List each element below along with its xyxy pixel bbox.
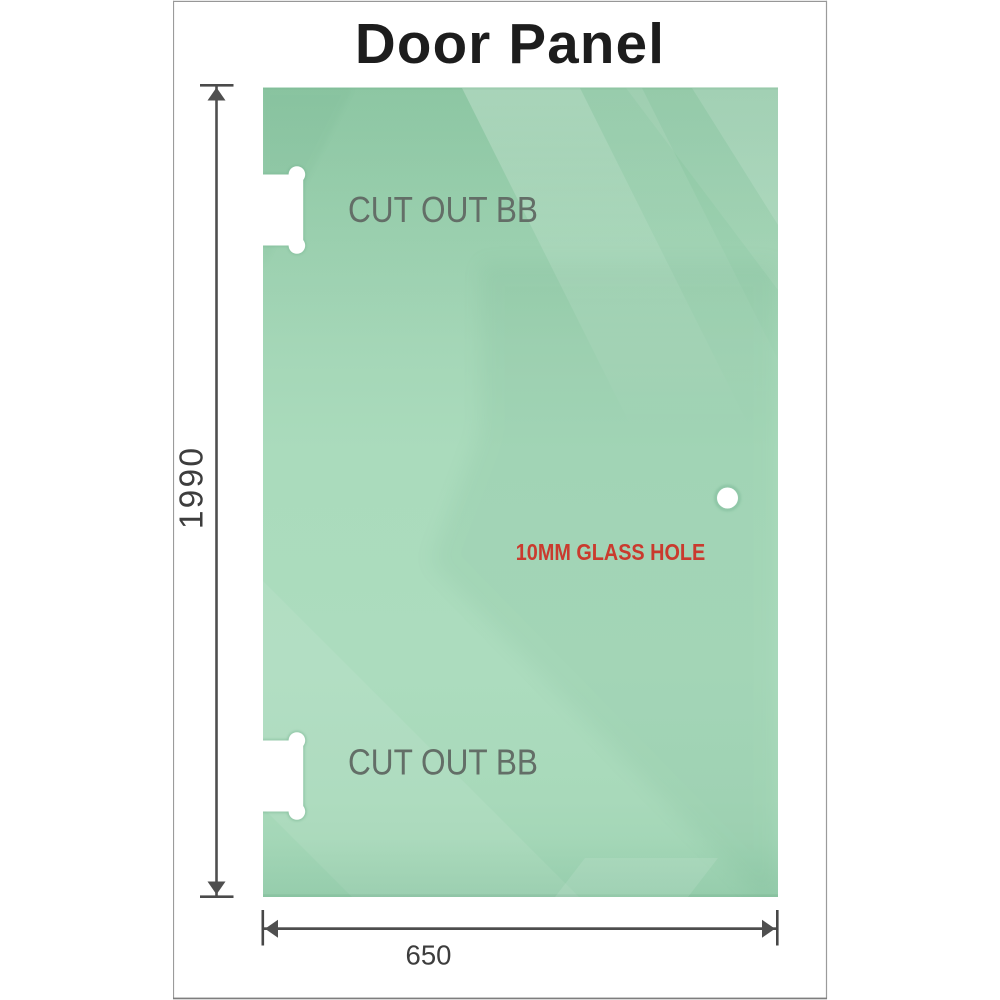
svg-text:Door Panel: Door Panel	[355, 12, 665, 75]
svg-text:1990: 1990	[174, 446, 211, 529]
svg-text:CUT OUT BB: CUT OUT BB	[348, 190, 538, 231]
svg-text:650: 650	[406, 939, 452, 970]
svg-text:10MM GLASS HOLE: 10MM GLASS HOLE	[516, 540, 705, 566]
svg-text:CUT OUT BB: CUT OUT BB	[348, 742, 538, 783]
